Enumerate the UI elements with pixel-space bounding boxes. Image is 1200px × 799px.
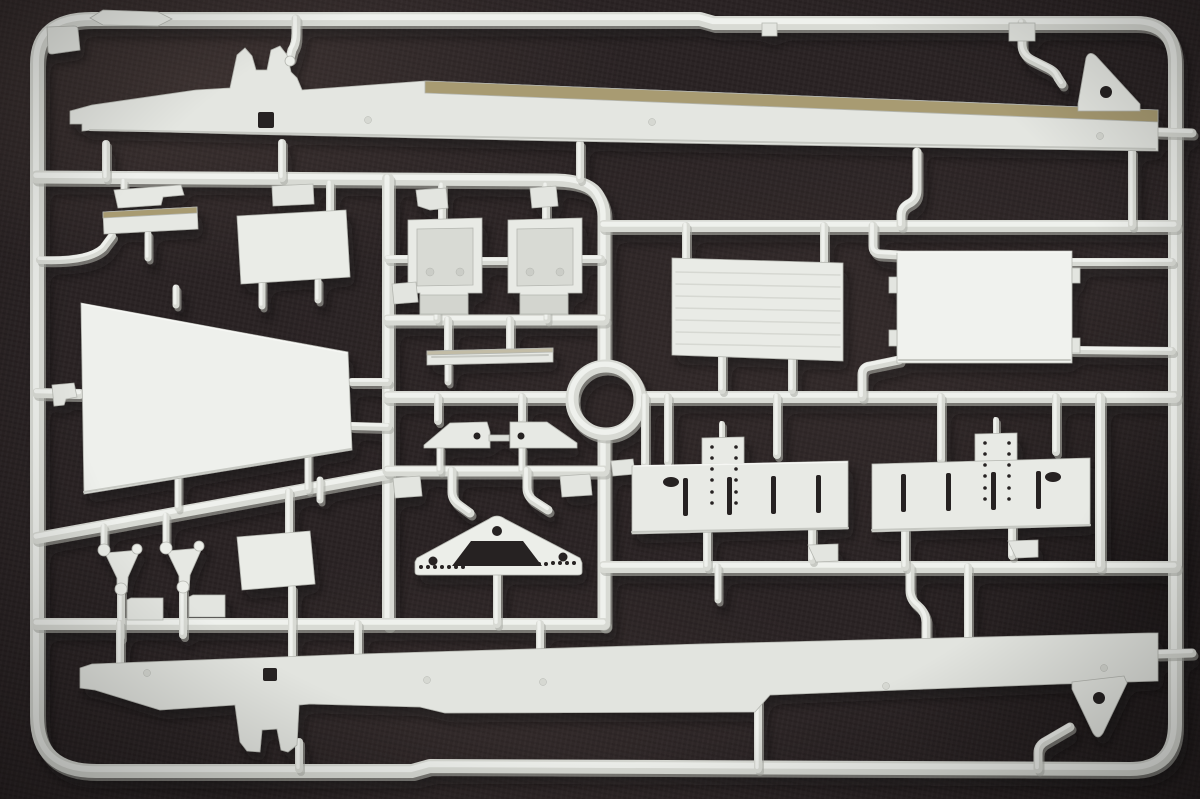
panel-b-hole-cluster-7 <box>1007 474 1011 478</box>
plain-panel-tab-l2 <box>889 330 897 346</box>
rail-rivets-7 <box>1101 665 1108 672</box>
panel-a-hole-cluster-0 <box>710 445 714 449</box>
panel-b-hole-cluster-8 <box>983 486 987 490</box>
panel-b-slot-1 <box>901 474 906 512</box>
box2-step-face <box>520 295 568 314</box>
bracket-perforations-6 <box>461 565 465 569</box>
bracket-perforations-8 <box>537 562 541 566</box>
box2-recess <box>517 228 573 286</box>
panel-b-hole-cluster-11 <box>1007 497 1011 501</box>
bracket-perforations-7 <box>530 562 534 566</box>
bracket-perforations-0 <box>419 565 423 569</box>
plain-panel-tab-r2 <box>1072 338 1080 353</box>
panel-a-hole-cluster-11 <box>734 501 738 505</box>
bracket-perforations-5 <box>454 565 458 569</box>
panel-a-slot-2 <box>727 477 732 515</box>
tab-r3-right <box>560 474 592 497</box>
panel-a-hole-cluster-8 <box>710 490 714 494</box>
fork2-boss-l <box>160 542 172 554</box>
panel-b-oval <box>1045 472 1061 482</box>
plain-panel-tab-l1 <box>889 277 897 293</box>
rect-panel-upper <box>237 210 350 284</box>
bracket-hole-right <box>559 553 568 562</box>
triangle-top-hole <box>1100 86 1112 98</box>
box-dimples-3 <box>556 268 564 276</box>
peg-rail2-right-highlight <box>1157 651 1191 652</box>
fork1-joint <box>115 583 127 595</box>
box1-step-face <box>420 295 468 314</box>
rail-rivets-2 <box>1097 133 1104 140</box>
plain-panel-tab-r1 <box>1072 268 1080 283</box>
fork2-boss-r <box>194 541 204 551</box>
panel-b-hole-cluster-0 <box>983 441 987 445</box>
gate-trapezoid-r2-highlight <box>351 424 387 425</box>
tab-r3-left <box>393 476 422 498</box>
fork1-boss-l <box>98 544 110 556</box>
panel-a-slot-3 <box>771 476 776 514</box>
tab-v2 <box>611 459 635 476</box>
bracket-triangle-bottomright <box>1072 676 1127 737</box>
tab-box2 <box>530 186 558 208</box>
tab-runner1 <box>272 184 314 206</box>
tab-box1 <box>416 188 448 210</box>
plain-panel <box>897 251 1072 363</box>
bracket-perforations-10 <box>551 561 555 565</box>
rail-rivets-1 <box>649 119 656 126</box>
sprue-svg <box>0 0 1200 799</box>
tab-topborder-mid <box>762 23 777 36</box>
panel-b-hole-cluster-5 <box>1007 463 1011 467</box>
fork1-boss-r <box>132 544 142 554</box>
sprue-group <box>36 10 1194 774</box>
panel-b-slot-2 <box>946 473 951 511</box>
slotted-panel-a <box>632 461 848 534</box>
tab-v1 <box>392 282 418 304</box>
wedge-connector <box>489 435 509 441</box>
triangle-bottom-hole <box>1093 692 1105 704</box>
box-dimples-1 <box>456 268 464 276</box>
sprue-photo <box>0 0 1200 799</box>
rect-panel-lower <box>237 531 315 590</box>
panel-a-slot-4 <box>816 475 821 513</box>
corner-plate-topleft <box>47 26 80 54</box>
rail-top-square-hole <box>258 112 274 128</box>
panel-a-slot-1 <box>683 478 688 516</box>
bracket-perforations-9 <box>544 562 548 566</box>
bracket-left-border <box>52 383 77 406</box>
bracket-perforations-1 <box>426 565 430 569</box>
bracket-perforations-2 <box>433 565 437 569</box>
box1-recess <box>417 228 473 286</box>
panel-b-slot-4 <box>1036 471 1041 509</box>
peg-rail1-right-highlight <box>1157 130 1191 131</box>
wedge-left-hole <box>474 433 481 440</box>
panel-b-hole-cluster-9 <box>1007 486 1011 490</box>
panel-b-hole-cluster-3 <box>1007 452 1011 456</box>
panel-a-hole-cluster-4 <box>710 467 714 471</box>
panel-a-hole-cluster-9 <box>734 490 738 494</box>
bracket-perforations-4 <box>447 565 451 569</box>
panel-a-hole-cluster-2 <box>710 456 714 460</box>
rail-bottom-square-hole <box>263 668 277 681</box>
panel-b-hole-cluster-10 <box>983 497 987 501</box>
box-dimples-0 <box>426 268 434 276</box>
panel-b-hole-cluster-6 <box>983 474 987 478</box>
fork2-foot <box>189 595 225 617</box>
bracket-perforations-3 <box>440 565 444 569</box>
panel-b-hole-cluster-2 <box>983 452 987 456</box>
panel-b-hole-cluster-1 <box>1007 441 1011 445</box>
rail-rivets-4 <box>424 677 431 684</box>
rail-rivets-3 <box>144 670 151 677</box>
panel-a-hole-cluster-3 <box>734 456 738 460</box>
panel-a-hole-cluster-7 <box>734 478 738 482</box>
fork1-foot <box>127 598 163 620</box>
chassis-rail-bottom <box>80 633 1158 752</box>
panel-a-hole-cluster-5 <box>734 467 738 471</box>
bracket-triangle-topright <box>1078 53 1140 111</box>
rail-rivets-0 <box>365 117 372 124</box>
box-dimples-2 <box>526 268 534 276</box>
panel-b-slot-3 <box>991 472 996 510</box>
bracket-hole-left <box>429 557 438 566</box>
bracket-hole-apex <box>492 526 502 536</box>
panel-a-oval <box>663 477 679 487</box>
fork2-joint <box>177 581 189 593</box>
gate-plainpanel-r2-highlight <box>1071 348 1171 349</box>
panel-a-hole-cluster-1 <box>734 445 738 449</box>
castle-gate-blob <box>285 56 295 66</box>
rail-rivets-6 <box>883 683 890 690</box>
panel-a-hole-cluster-10 <box>710 501 714 505</box>
wedge-right-hole <box>518 433 525 440</box>
bracket-perforations-11 <box>558 561 562 565</box>
panel-b-hole-cluster-4 <box>983 463 987 467</box>
tab-topborder-right <box>1009 23 1035 41</box>
rail-rivets-5 <box>540 679 547 686</box>
bracket-perforations-12 <box>565 561 569 565</box>
panel-a-hole-cluster-6 <box>710 478 714 482</box>
bracket-perforations-13 <box>572 561 576 565</box>
